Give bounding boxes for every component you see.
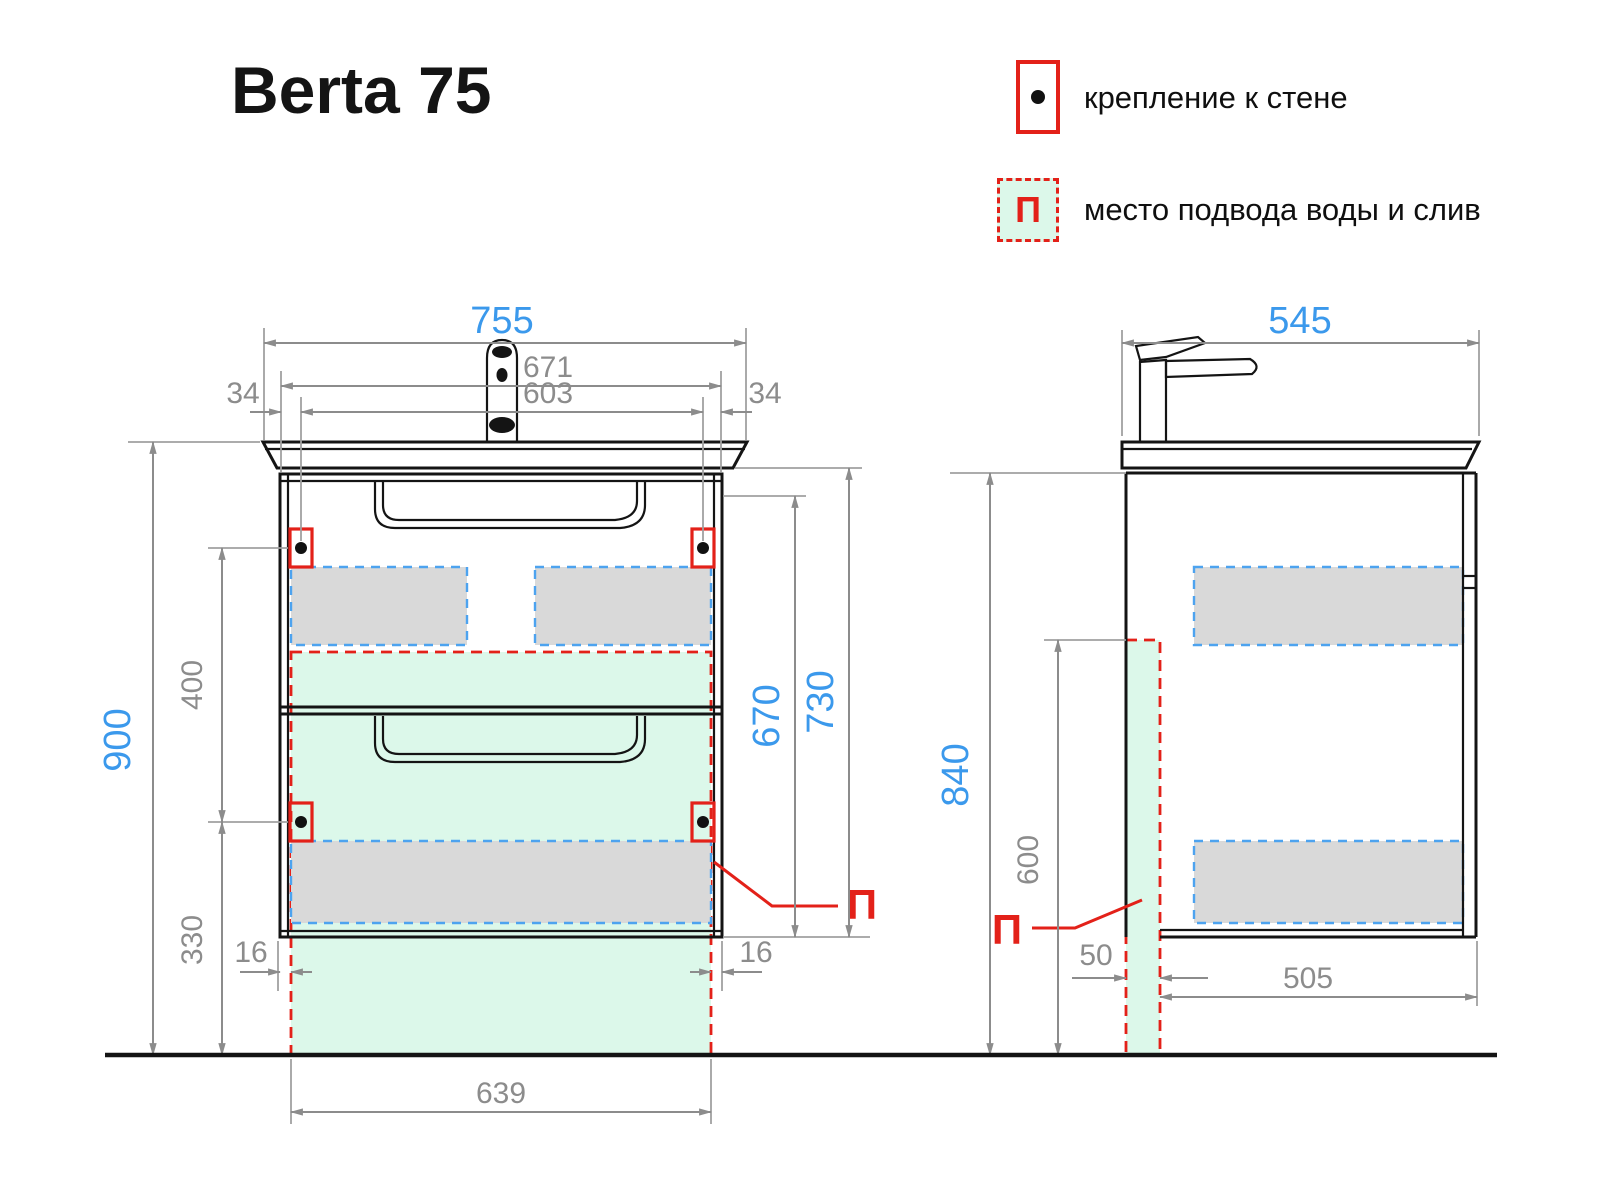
- sink-top-side: [1122, 442, 1479, 468]
- dim-side-offset-left: 34: [226, 377, 259, 410]
- dim-mount-spacing: 603: [523, 377, 573, 410]
- dim-drawer-stack-height: 670: [746, 684, 788, 747]
- dim-side-cabinet-height: 840: [935, 743, 977, 806]
- dim-mount-floor: 330: [176, 915, 209, 965]
- dim-inner-depth: 505: [1283, 962, 1333, 995]
- water-supply-zone-side: [1126, 640, 1160, 1055]
- water-supply-legend-label: место подвода воды и слив: [1084, 192, 1481, 228]
- mount-dot-icon: [1031, 90, 1045, 104]
- dim-supply-depth: 50: [1079, 939, 1112, 972]
- slide-zone-top-right: [535, 567, 711, 645]
- p-symbol-legend: П: [1015, 192, 1041, 228]
- dim-mount-gap: 400: [176, 660, 209, 710]
- slide-zone-top-left: [291, 567, 467, 645]
- slide-zone-side-bottom: [1194, 841, 1463, 923]
- faucet-front: [487, 340, 517, 442]
- dim-total-width: 755: [470, 300, 533, 342]
- p-symbol-front: П: [847, 881, 877, 928]
- water-supply-legend-icon: П: [997, 178, 1059, 242]
- faucet-side: [1136, 337, 1257, 442]
- dim-cabinet-height: 730: [800, 670, 842, 733]
- dim-green-width: 639: [476, 1077, 526, 1110]
- p-symbol-side: П: [992, 906, 1022, 953]
- dim-green-offset-right: 16: [739, 936, 772, 969]
- dim-green-offset-left: 16: [234, 936, 267, 969]
- front-view: П: [97, 300, 877, 1124]
- dim-side-offset-right: 34: [748, 377, 781, 410]
- dim-supply-height: 600: [1012, 835, 1045, 885]
- legend: крепление к стене П место подвода воды и…: [0, 0, 1600, 260]
- slide-zone-side-top: [1194, 567, 1463, 645]
- slide-zone-bottom: [291, 841, 711, 923]
- wall-mount-legend-icon: [1016, 60, 1060, 134]
- dim-total-depth: 545: [1268, 300, 1331, 342]
- wall-mount-legend-label: крепление к стене: [1084, 80, 1348, 116]
- drawing-page: П: [0, 0, 1600, 1200]
- dim-total-height: 900: [97, 708, 139, 771]
- side-view: П 545 840 600 50 50: [935, 300, 1479, 1055]
